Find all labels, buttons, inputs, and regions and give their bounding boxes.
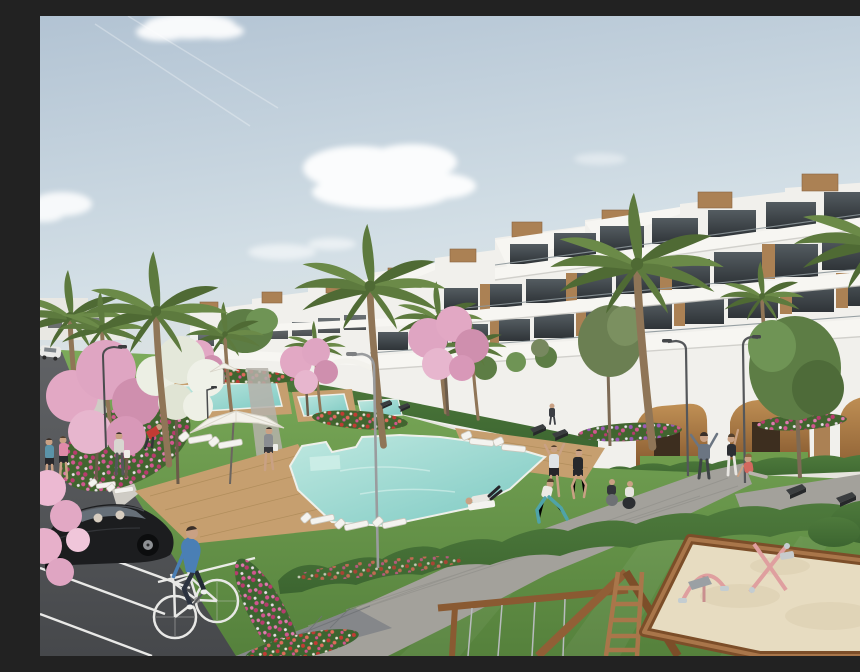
car-occupant [116, 511, 125, 520]
cloud [136, 16, 244, 41]
cloud [574, 153, 626, 165]
pool-steps [310, 455, 341, 471]
sandbox [644, 539, 860, 656]
render-canvas [40, 16, 860, 656]
car-occupant [94, 514, 103, 523]
architectural-render [40, 16, 860, 656]
